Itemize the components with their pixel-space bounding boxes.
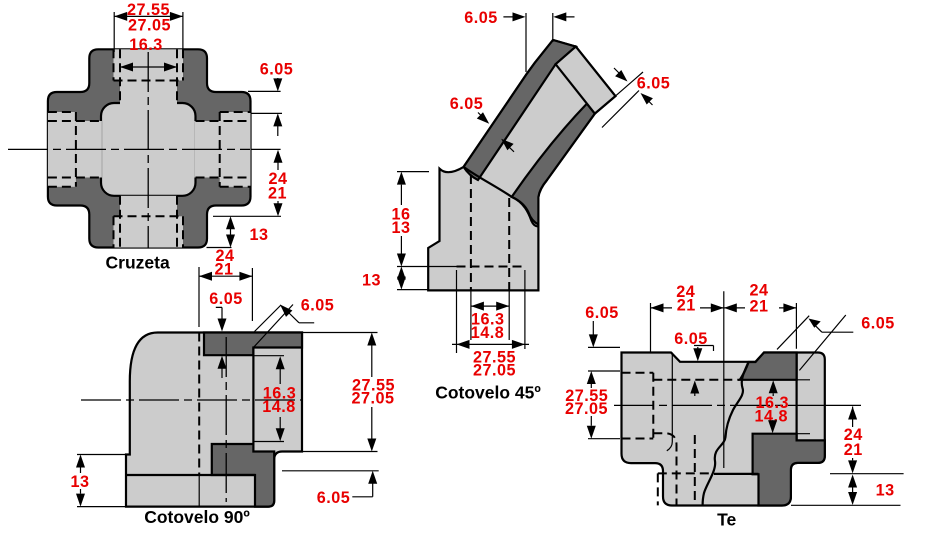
svg-text:13: 13 — [391, 219, 410, 237]
svg-text:13: 13 — [249, 226, 268, 244]
svg-text:6.05: 6.05 — [209, 290, 243, 308]
svg-text:6.05: 6.05 — [585, 304, 619, 322]
svg-text:27.05: 27.05 — [351, 390, 394, 408]
svg-text:Cotovelo 45º: Cotovelo 45º — [435, 383, 541, 403]
svg-text:6.05: 6.05 — [861, 315, 895, 333]
svg-text:21: 21 — [268, 185, 287, 203]
svg-text:27.05: 27.05 — [565, 400, 608, 418]
svg-text:13: 13 — [70, 473, 89, 491]
svg-text:Te: Te — [717, 510, 736, 530]
svg-text:27.05: 27.05 — [473, 362, 516, 380]
svg-text:21: 21 — [844, 441, 863, 459]
svg-text:14.8: 14.8 — [262, 398, 296, 416]
svg-text:6.05: 6.05 — [637, 75, 671, 93]
svg-text:6.05: 6.05 — [450, 95, 484, 113]
svg-text:13: 13 — [876, 482, 895, 500]
svg-text:6.05: 6.05 — [301, 297, 335, 315]
svg-text:27.05: 27.05 — [128, 17, 171, 35]
svg-text:Cruzeta: Cruzeta — [106, 253, 170, 273]
svg-text:16.3: 16.3 — [129, 36, 163, 54]
svg-text:14.8: 14.8 — [471, 324, 505, 342]
svg-text:6.05: 6.05 — [464, 9, 498, 27]
svg-text:6.05: 6.05 — [260, 61, 294, 79]
svg-text:6.05: 6.05 — [317, 489, 351, 507]
svg-text:Cotovelo 90º: Cotovelo 90º — [144, 507, 250, 527]
svg-text:21: 21 — [677, 297, 696, 315]
svg-text:13: 13 — [362, 272, 381, 290]
svg-text:21: 21 — [749, 298, 768, 316]
